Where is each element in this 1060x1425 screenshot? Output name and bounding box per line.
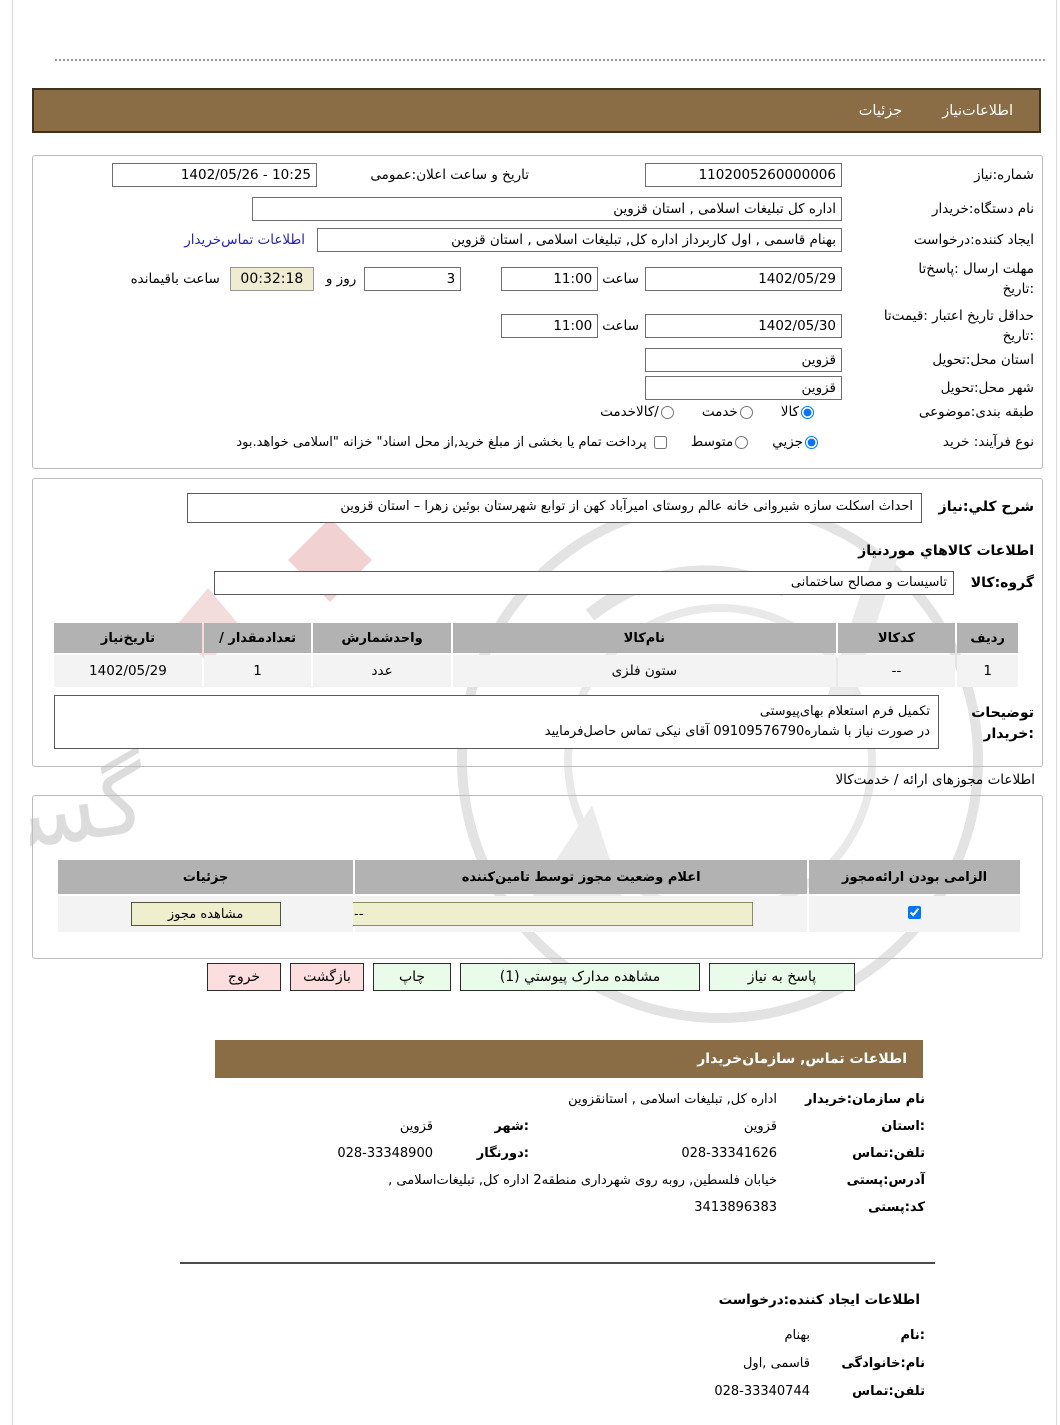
need-description-box[interactable]: احداث اسکلت سازه شیروانی خانه عالم روستا… bbox=[187, 493, 922, 523]
classification-service-radio[interactable] bbox=[740, 406, 753, 419]
requester-lastname-value: قاسمی ,اول bbox=[695, 1356, 810, 1371]
delivery-province-field[interactable] bbox=[645, 348, 842, 372]
goods-group-box[interactable]: تاسیسات و مصالح ساختمانی bbox=[214, 571, 954, 595]
validity-hour-label: ساعت bbox=[602, 318, 639, 334]
left-page-border bbox=[12, 0, 13, 1425]
permit-required-col: الزامی بودن ارائه‌مجوز bbox=[809, 860, 1020, 894]
view-attached-docs-button[interactable]: مشاهده مدارک پیوستي (1) bbox=[460, 963, 700, 991]
org-postal-code-value: 3413896383 bbox=[529, 1200, 777, 1215]
process-minor-radio[interactable] bbox=[805, 436, 818, 449]
org-postal-code-label: کد:پستی bbox=[777, 1200, 925, 1215]
buyer-contact-link[interactable]: اطلاعات تماس‌خریدار bbox=[184, 232, 305, 248]
goods-group-label: گروه:کالا bbox=[954, 575, 1034, 591]
buyer-contact-section: نام سازمان:خریدار اداره کل, تبلیغات اسلا… bbox=[180, 1092, 925, 1215]
price-validity-date-field[interactable] bbox=[645, 314, 842, 338]
respond-to-need-button[interactable]: پاسخ به نیاز bbox=[709, 963, 855, 991]
process-medium-option: متوسط bbox=[691, 434, 733, 450]
requester-name-value: بهنام bbox=[695, 1328, 810, 1343]
requester-lastname-label: نام:خانوادگی bbox=[810, 1356, 925, 1371]
goods-col-unit: واحدشمارش bbox=[313, 623, 451, 653]
goods-col-qty: تعدادمقدار / bbox=[204, 623, 311, 653]
buyer-org-label: نام دستگاه:خریدار bbox=[842, 201, 1034, 217]
permit-status-field[interactable] bbox=[347, 902, 753, 926]
top-dotted-divider bbox=[55, 59, 1045, 61]
price-validity-time-field[interactable] bbox=[501, 314, 598, 338]
process-minor-option: جزیي bbox=[772, 434, 803, 450]
goods-table-row[interactable]: 1 -- ستون فلزی عدد 1 1402/05/29 bbox=[54, 655, 1018, 687]
org-phone-label: تلفن:تماس bbox=[777, 1146, 925, 1161]
classification-service-option: خدمت bbox=[702, 404, 738, 420]
response-deadline-date-field[interactable] bbox=[645, 267, 842, 291]
goods-cell-need-date: 1402/05/29 bbox=[54, 655, 202, 687]
requester-phone-value: 028-33340744 bbox=[695, 1384, 810, 1399]
days-and-label: روز و bbox=[326, 271, 356, 287]
goods-table-header-row: ردیف کدکالا نام‌کالا واحدشمارش تعدادمقدا… bbox=[54, 623, 1018, 653]
buyer-notes-box[interactable]: تکمیل فرم استعلام بهای‌پیوستی در صورت نی… bbox=[54, 695, 939, 749]
action-buttons: پاسخ به نیاز مشاهده مدارک پیوستي (1) چاپ… bbox=[207, 963, 855, 991]
remaining-days-field[interactable] bbox=[364, 267, 461, 291]
permits-section-heading: اطلاعات مجوزهای ارائه / خدمت‌کالا bbox=[835, 772, 1035, 788]
buyer-org-field[interactable] bbox=[252, 197, 842, 221]
permits-header-row: الزامی بودن ارائه‌مجوز اعلام وضعیت مجوز … bbox=[58, 860, 1020, 894]
goods-cell-code: -- bbox=[838, 655, 955, 687]
permit-details-col: جزئیات bbox=[58, 860, 353, 894]
need-number-field[interactable] bbox=[645, 163, 842, 187]
requester-section: :نام بهنام نام:خانوادگی قاسمی ,اول تلفن:… bbox=[695, 1328, 925, 1399]
org-name-value: اداره کل, تبلیغات اسلامی , استانقزوین bbox=[180, 1092, 777, 1107]
deadline-hour-label: ساعت bbox=[602, 271, 639, 287]
price-validity-label: حداقل تاریخ اعتبار :قیمت‌تا :تاریخ bbox=[842, 306, 1034, 347]
required-goods-heading: اطلاعات کالاهاي موردنیاز bbox=[858, 543, 1034, 559]
classification-goods-radio[interactable] bbox=[801, 406, 814, 419]
view-permit-button[interactable]: مشاهده مجوز bbox=[131, 902, 281, 926]
permit-required-checkbox[interactable] bbox=[908, 906, 921, 919]
delivery-province-label: استان محل:تحویل bbox=[842, 352, 1034, 368]
permits-row: مشاهده مجوز bbox=[58, 896, 1020, 932]
permits-table: الزامی بودن ارائه‌مجوز اعلام وضعیت مجوز … bbox=[56, 858, 1022, 934]
buyer-notes-line2: در صورت نیاز با شماره09109576790 آقای نی… bbox=[63, 722, 930, 742]
buyer-notes-label: توضیحات :خریدار bbox=[939, 703, 1034, 745]
top-tab-bar: اطلاعات‌نیاز جزئیات bbox=[32, 88, 1041, 133]
delivery-city-field[interactable] bbox=[645, 376, 842, 400]
delivery-city-label: شهر محل:تحویل bbox=[842, 380, 1034, 396]
goods-col-row: ردیف bbox=[957, 623, 1018, 653]
requester-name-label: :نام bbox=[810, 1328, 925, 1343]
goods-cell-name: ستون فلزی bbox=[453, 655, 836, 687]
response-deadline-time-field[interactable] bbox=[501, 267, 598, 291]
print-button[interactable]: چاپ bbox=[373, 963, 451, 991]
org-fax-label: :دورنگار bbox=[433, 1146, 529, 1161]
need-form-panel: شماره:نیاز تاریخ و ساعت اعلان:عمومی نام … bbox=[32, 155, 1043, 469]
goods-cell-row: 1 bbox=[957, 655, 1018, 687]
announce-datetime-field[interactable] bbox=[112, 163, 317, 187]
permits-panel: الزامی بودن ارائه‌مجوز اعلام وضعیت مجوز … bbox=[32, 795, 1043, 959]
org-phone-value: 028-33341626 bbox=[529, 1146, 777, 1161]
tab-details[interactable]: جزئیات bbox=[859, 103, 902, 119]
goods-table: ردیف کدکالا نام‌کالا واحدشمارش تعدادمقدا… bbox=[52, 621, 1020, 689]
process-medium-radio[interactable] bbox=[735, 436, 748, 449]
right-page-border bbox=[1056, 0, 1057, 1425]
goods-cell-qty: 1 bbox=[204, 655, 311, 687]
org-city-value: قزوین bbox=[180, 1119, 433, 1134]
section-divider-line bbox=[180, 1262, 935, 1264]
permit-status-col: اعلام وضعیت مجوز توسط تامین‌کننده bbox=[355, 860, 807, 894]
goods-col-name: نام‌کالا bbox=[453, 623, 836, 653]
goods-col-code: کدکالا bbox=[838, 623, 955, 653]
org-address-value: خیابان فلسطین, روبه روی شهرداری منطقه2 ا… bbox=[180, 1173, 777, 1188]
goods-cell-unit: عدد bbox=[313, 655, 451, 687]
buyer-contact-heading-bar: اطلاعات تماس, سازمان‌خریدار bbox=[215, 1040, 923, 1078]
hours-remaining-label: ساعت باقیمانده bbox=[131, 271, 220, 287]
subject-classification-label: طبقه بندی:موضوعی bbox=[842, 404, 1034, 420]
treasury-payment-checkbox[interactable] bbox=[654, 436, 667, 449]
countdown-timer: 00:32:18 bbox=[230, 267, 314, 291]
buyer-contact-heading: اطلاعات تماس, سازمان‌خریدار bbox=[697, 1051, 907, 1067]
back-button[interactable]: بازگشت bbox=[290, 963, 364, 991]
classification-goods-service-option: /کالاخدمت bbox=[600, 404, 659, 420]
response-deadline-label: مهلت ارسال :پاسخ‌تا :تاریخ bbox=[842, 259, 1034, 300]
need-number-label: شماره:نیاز bbox=[842, 167, 1034, 183]
goods-col-need-date: تاریخ‌نیاز bbox=[54, 623, 202, 653]
need-description-label: شرح کلي:نیاز bbox=[922, 499, 1034, 515]
requester-phone-label: تلفن:تماس bbox=[810, 1384, 925, 1399]
announce-datetime-label: تاریخ و ساعت اعلان:عمومی bbox=[317, 167, 529, 183]
purchase-process-type-label: نوع فرآیند: خرید bbox=[842, 434, 1034, 450]
requester-section-heading: اطلاعات ایجاد کننده:درخواست bbox=[719, 1292, 920, 1308]
org-province-value: قزوین bbox=[529, 1119, 777, 1134]
request-creator-label: ایجاد کننده:درخواست bbox=[842, 232, 1034, 248]
tab-need-info[interactable]: اطلاعات‌نیاز bbox=[942, 103, 1013, 119]
exit-button[interactable]: خروج bbox=[207, 963, 281, 991]
org-address-label: آدرس:پستی bbox=[777, 1173, 925, 1188]
need-description-panel: شرح کلي:نیاز احداث اسکلت سازه شیروانی خا… bbox=[32, 478, 1043, 767]
buyer-notes-line1: تکمیل فرم استعلام بهای‌پیوستی bbox=[63, 702, 930, 722]
request-creator-field[interactable] bbox=[317, 228, 842, 252]
treasury-payment-note: پرداخت تمام یا بخشی از مبلغ خرید,از محل … bbox=[236, 435, 646, 450]
classification-goods-option: کالا bbox=[781, 404, 799, 420]
org-city-label: :شهر bbox=[433, 1119, 529, 1134]
org-name-label: نام سازمان:خریدار bbox=[777, 1092, 925, 1107]
org-province-label: :استان bbox=[777, 1119, 925, 1134]
classification-goods-service-radio[interactable] bbox=[661, 406, 674, 419]
org-fax-value: 028-33348900 bbox=[180, 1146, 433, 1161]
page: گستران اطلاعات‌نیاز جزئیات شماره:نیاز تا… bbox=[0, 0, 1060, 1425]
